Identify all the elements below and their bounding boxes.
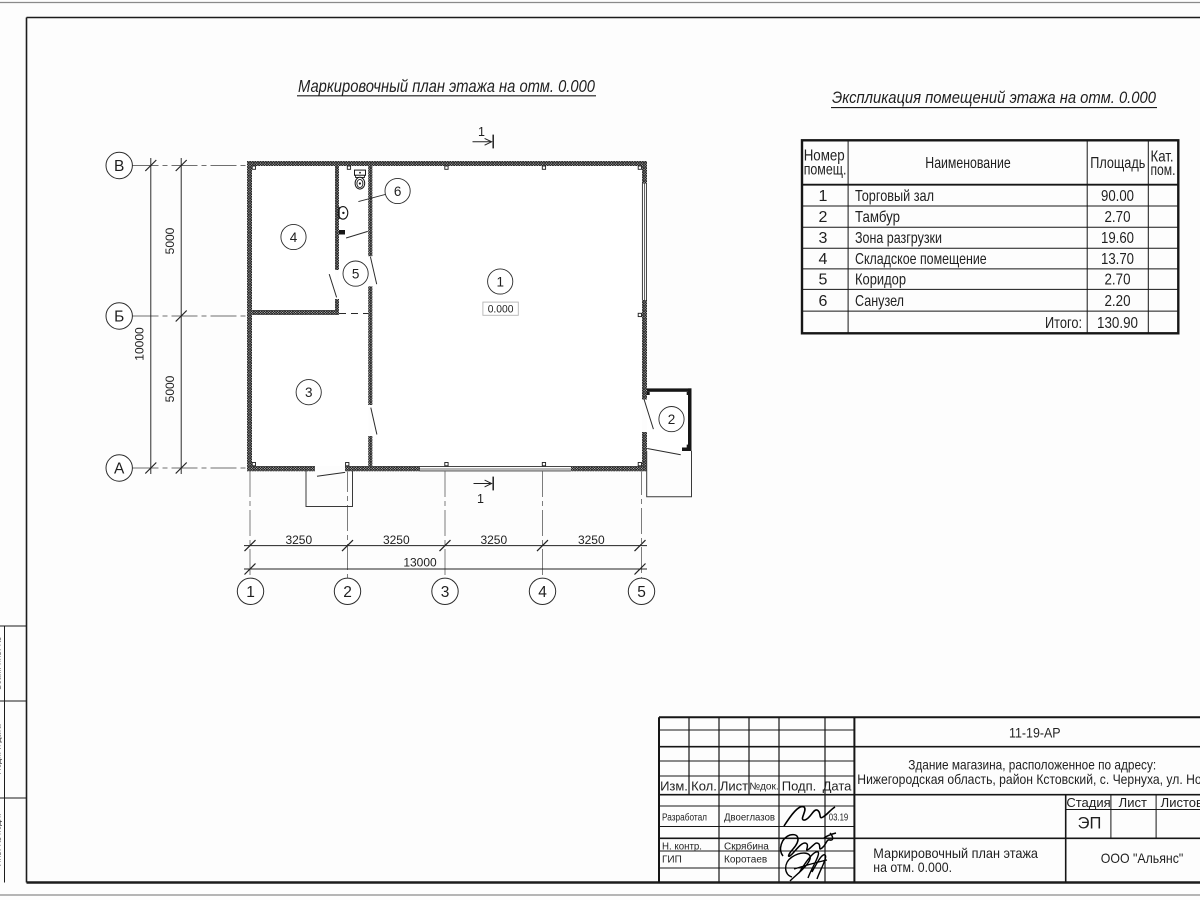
svg-text:ООО "Альянс": ООО "Альянс" xyxy=(1101,850,1184,866)
svg-text:1: 1 xyxy=(819,188,828,205)
svg-text:1: 1 xyxy=(478,125,485,139)
svg-text:1: 1 xyxy=(477,492,484,506)
svg-text:Двоеглазов: Двоеглазов xyxy=(724,813,775,824)
svg-text:5000: 5000 xyxy=(163,375,177,402)
svg-text:11-19-АР: 11-19-АР xyxy=(1009,725,1061,741)
svg-text:Торговый зал: Торговый зал xyxy=(855,188,934,205)
svg-text:Санузел: Санузел xyxy=(855,293,904,310)
svg-text:2.20: 2.20 xyxy=(1105,293,1131,310)
svg-text:90.00: 90.00 xyxy=(1101,188,1134,205)
svg-text:3: 3 xyxy=(305,385,313,400)
svg-text:130.90: 130.90 xyxy=(1097,315,1138,332)
svg-text:Скрябина: Скрябина xyxy=(724,841,769,853)
svg-text:2.70: 2.70 xyxy=(1105,272,1131,289)
svg-text:Итого:: Итого: xyxy=(1045,315,1082,332)
svg-text:Взам. инв. №: Взам. инв. № xyxy=(0,637,2,690)
svg-text:1: 1 xyxy=(246,584,255,601)
svg-text:3: 3 xyxy=(441,584,450,601)
svg-text:2: 2 xyxy=(668,412,676,427)
svg-text:13.70: 13.70 xyxy=(1101,251,1134,268)
svg-text:А: А xyxy=(114,461,125,478)
svg-text:Складское помещение: Складское помещение xyxy=(855,251,987,268)
svg-text:№док.: №док. xyxy=(749,782,778,793)
svg-text:19.60: 19.60 xyxy=(1101,230,1134,247)
svg-text:2.70: 2.70 xyxy=(1105,209,1131,226)
svg-text:4: 4 xyxy=(819,251,828,268)
svg-text:Инв. № подл.: Инв. № подл. xyxy=(0,814,2,867)
svg-text:ГИП: ГИП xyxy=(662,855,682,866)
svg-text:10000: 10000 xyxy=(133,327,147,361)
svg-text:Тамбур: Тамбур xyxy=(855,209,900,226)
svg-text:Б: Б xyxy=(114,309,124,326)
svg-text:помещ.: помещ. xyxy=(804,161,847,178)
svg-text:Н. контр.: Н. контр. xyxy=(662,842,702,853)
svg-text:Дата: Дата xyxy=(823,779,853,794)
svg-text:4: 4 xyxy=(538,584,547,601)
svg-text:0.000: 0.000 xyxy=(488,304,514,316)
svg-text:Экспликация помещений этажа на: Экспликация помещений этажа на отм. 0.00… xyxy=(832,88,1156,107)
svg-text:6: 6 xyxy=(394,184,402,199)
svg-text:на отм. 0.000.: на отм. 0.000. xyxy=(873,859,952,875)
svg-text:2: 2 xyxy=(819,209,828,226)
svg-text:5: 5 xyxy=(637,584,646,601)
svg-text:Разработал: Разработал xyxy=(662,812,707,824)
svg-text:Коротаев: Коротаев xyxy=(724,855,767,866)
svg-text:Листов: Листов xyxy=(1161,795,1200,810)
svg-text:3250: 3250 xyxy=(383,533,410,547)
svg-text:Подп.: Подп. xyxy=(782,779,817,794)
svg-text:5000: 5000 xyxy=(163,227,177,254)
svg-text:5: 5 xyxy=(819,272,828,289)
svg-text:пом.: пом. xyxy=(1151,162,1176,179)
svg-text:3: 3 xyxy=(819,230,828,247)
svg-text:ЭП: ЭП xyxy=(1078,815,1102,833)
svg-text:Коридор: Коридор xyxy=(855,272,906,289)
svg-text:Наименование: Наименование xyxy=(925,155,1010,172)
svg-text:03.19: 03.19 xyxy=(829,813,849,824)
svg-text:Площадь: Площадь xyxy=(1090,155,1145,172)
svg-text:6: 6 xyxy=(819,293,828,310)
svg-text:13000: 13000 xyxy=(403,556,437,570)
svg-text:Изм.: Изм. xyxy=(660,779,688,794)
svg-text:Лист: Лист xyxy=(1119,795,1147,810)
svg-text:2: 2 xyxy=(343,584,352,601)
svg-text:3250: 3250 xyxy=(480,533,507,547)
svg-text:Подп. и дата: Подп. и дата xyxy=(0,724,2,774)
svg-text:5: 5 xyxy=(352,266,360,281)
svg-text:В: В xyxy=(114,158,124,175)
svg-text:4: 4 xyxy=(290,230,298,245)
svg-text:Маркировочный план этажа на от: Маркировочный план этажа на отм. 0.000 xyxy=(298,76,595,96)
svg-text:Зона разгрузки: Зона разгрузки xyxy=(855,230,942,247)
svg-text:Стадия: Стадия xyxy=(1066,795,1110,810)
svg-text:Лист: Лист xyxy=(720,779,748,794)
svg-text:3250: 3250 xyxy=(285,533,312,547)
svg-text:1: 1 xyxy=(496,274,504,289)
svg-text:Нижегородская область, район К: Нижегородская область, район Кстовский, … xyxy=(857,771,1200,787)
svg-text:Кол.: Кол. xyxy=(691,779,717,794)
svg-text:3250: 3250 xyxy=(578,533,605,547)
